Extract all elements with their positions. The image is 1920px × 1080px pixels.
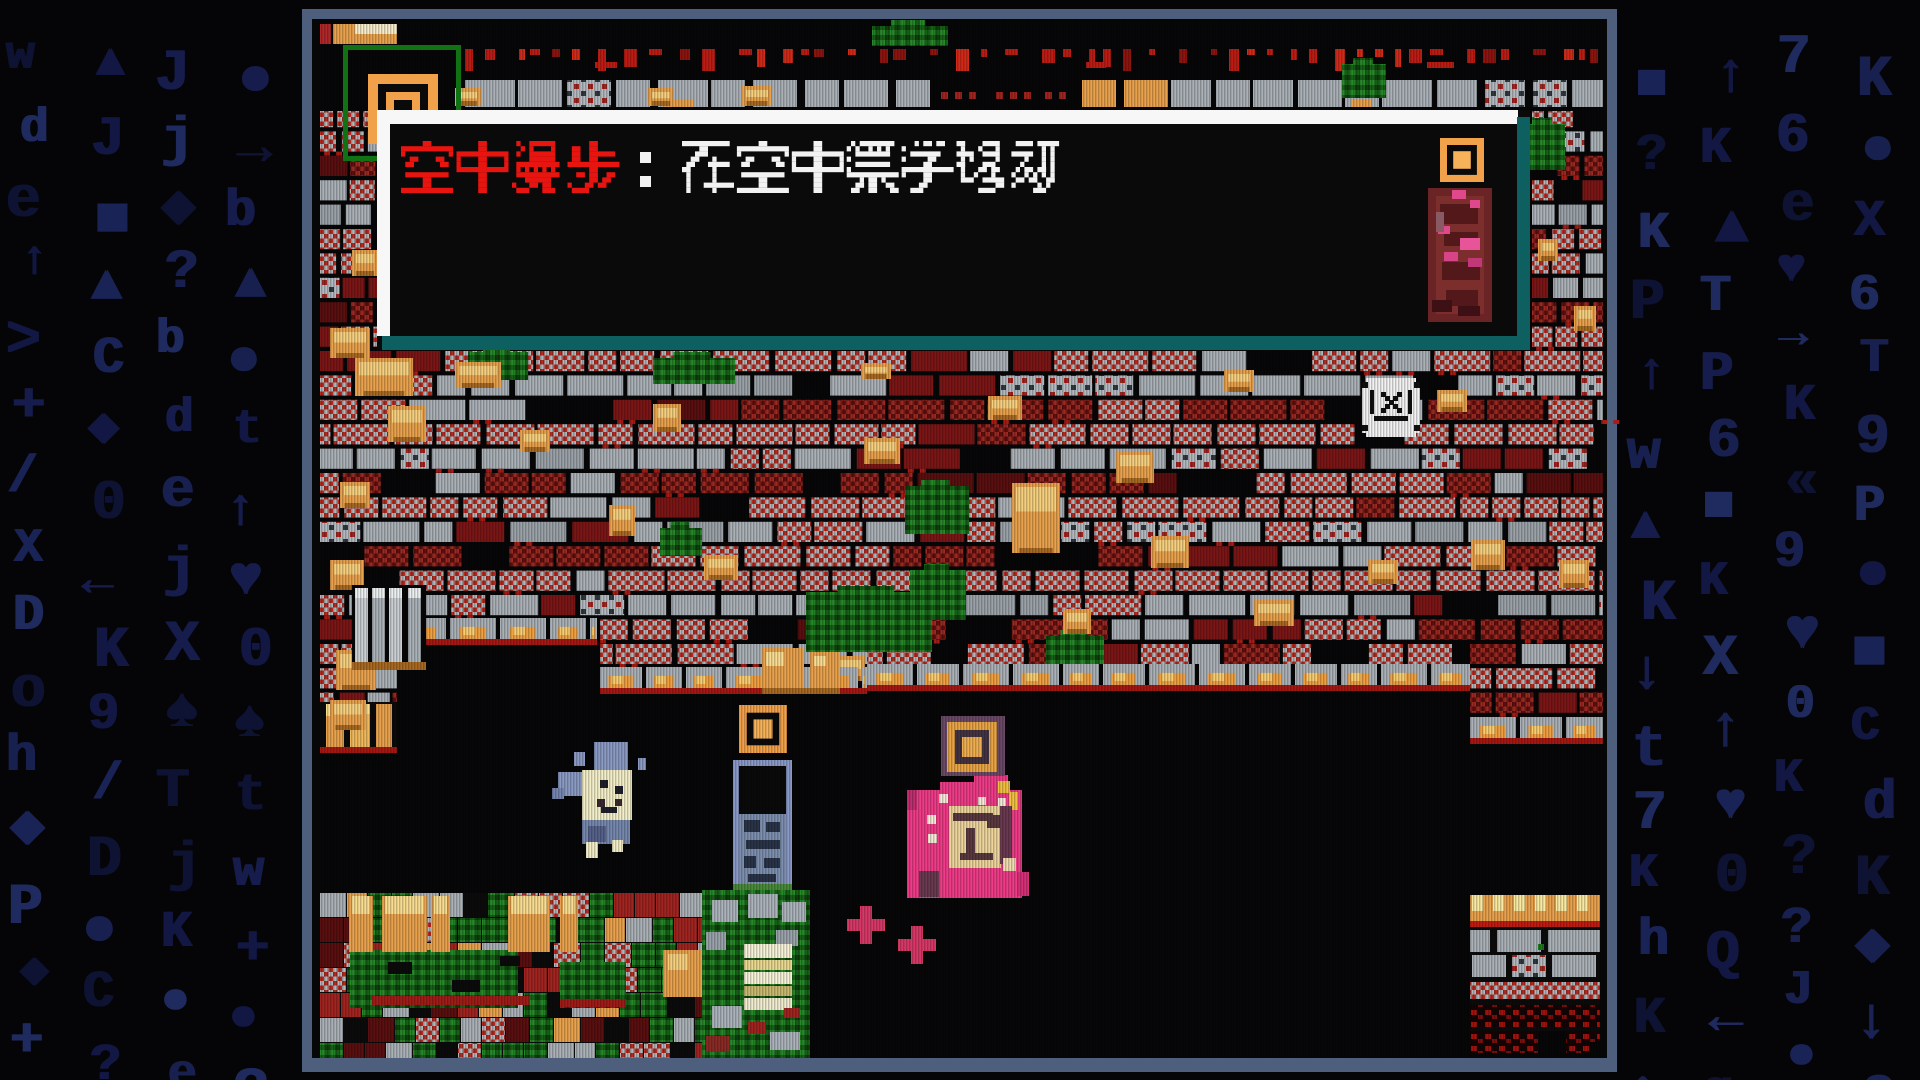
svg-text:+: +	[11, 1009, 45, 1073]
svg-text:/: /	[8, 448, 39, 507]
svg-text:?: ?	[91, 1036, 122, 1080]
svg-text:w: w	[1628, 421, 1662, 485]
svg-text:■: ■	[96, 188, 131, 253]
svg-text:Q: Q	[1707, 921, 1741, 985]
svg-text:d: d	[166, 392, 195, 446]
svg-text:K: K	[1630, 847, 1659, 901]
svg-text:◆: ◆	[21, 945, 50, 999]
svg-text:T: T	[1701, 267, 1732, 326]
svg-text:▲: ▲	[1716, 196, 1750, 260]
svg-text:▲: ▲	[92, 257, 123, 316]
svg-text:▲: ▲	[1632, 500, 1661, 554]
svg-text:♠: ♠	[166, 679, 200, 743]
svg-text:●: ●	[83, 898, 118, 963]
svg-text:♥: ♥	[1716, 775, 1747, 834]
svg-text:K: K	[1639, 204, 1671, 263]
svg-text:P: P	[9, 876, 44, 941]
svg-text:▲: ▲	[97, 37, 126, 91]
svg-text:>: >	[7, 309, 42, 374]
svg-text:7: 7	[1778, 25, 1812, 89]
svg-text:w: w	[7, 29, 36, 83]
svg-text:↑: ↑	[226, 481, 257, 540]
svg-text:●: ●	[228, 328, 262, 392]
svg-text:K: K	[1785, 376, 1817, 435]
svg-text:e: e	[169, 1048, 198, 1080]
svg-text:b: b	[157, 313, 186, 367]
svg-text:j: j	[164, 538, 198, 602]
svg-text:♥: ♥	[1786, 601, 1821, 666]
svg-text:Q: Q	[1863, 1065, 1897, 1080]
svg-text:?: ?	[1782, 899, 1813, 958]
svg-text:◆: ◆	[11, 796, 46, 861]
svg-text:←: ←	[1710, 986, 1744, 1050]
svg-text:o: o	[12, 659, 47, 724]
svg-text:P: P	[1855, 477, 1886, 536]
svg-text:t: t	[234, 403, 263, 457]
svg-text:◆: ◆	[1627, 1060, 1661, 1080]
svg-text:●: ●	[1857, 542, 1891, 606]
svg-text:K: K	[1856, 847, 1891, 912]
svg-text:■: ■	[1637, 55, 1668, 114]
svg-text:↑: ↑	[21, 234, 50, 288]
svg-text:9: 9	[1775, 523, 1806, 582]
svg-text:d: d	[21, 102, 50, 156]
svg-text:t: t	[1633, 718, 1668, 783]
svg-text:?: ?	[166, 240, 200, 304]
svg-text:♥: ♥	[1778, 242, 1807, 296]
svg-text:0: 0	[1716, 844, 1750, 908]
svg-text:D: D	[14, 586, 45, 645]
svg-text:●: ●	[1788, 1029, 1817, 1080]
svg-text:J: J	[156, 42, 191, 107]
svg-text:h: h	[7, 727, 38, 786]
svg-text:9: 9	[1857, 405, 1891, 469]
svg-text:b: b	[226, 182, 257, 241]
svg-text:↑: ↑	[1709, 698, 1744, 763]
svg-text:P: P	[1701, 342, 1735, 406]
svg-text:0: 0	[240, 618, 274, 682]
svg-text:?: ?	[1783, 826, 1818, 891]
svg-text:J: J	[92, 107, 126, 171]
svg-text:■: ■	[1853, 621, 1888, 686]
svg-text:6: 6	[1708, 409, 1742, 473]
svg-text:♠: ♠	[235, 693, 266, 752]
svg-text:K: K	[1642, 572, 1677, 637]
svg-text:d: d	[1864, 771, 1898, 835]
svg-text:●: ●	[239, 48, 274, 113]
svg-text:K: K	[1858, 48, 1893, 113]
svg-text:C: C	[94, 329, 125, 388]
svg-text:■: ■	[1704, 477, 1735, 536]
svg-text:w: w	[234, 842, 265, 901]
svg-text:?: ?	[1637, 126, 1668, 185]
svg-text:K: K	[1635, 989, 1667, 1048]
svg-text:e: e	[1782, 173, 1816, 237]
svg-text:P: P	[1631, 271, 1666, 336]
svg-text:↑: ↑	[1715, 44, 1749, 108]
svg-text:6: 6	[1850, 266, 1881, 325]
svg-text:←: ←	[83, 552, 114, 611]
svg-text:6: 6	[1777, 104, 1811, 168]
svg-text:X: X	[1855, 192, 1887, 251]
svg-text:/: /	[93, 755, 124, 814]
svg-text:◆: ◆	[162, 176, 197, 241]
svg-text:e: e	[7, 169, 42, 234]
svg-text:?: ?	[235, 1060, 270, 1080]
svg-text:g: g	[1703, 1062, 1734, 1080]
svg-text:«: «	[1786, 450, 1820, 514]
svg-text:X: X	[15, 522, 44, 576]
svg-text:j: j	[169, 833, 203, 897]
svg-text:C: C	[1852, 700, 1881, 754]
svg-text:K: K	[95, 619, 130, 684]
svg-text:0: 0	[93, 471, 127, 535]
svg-text:e: e	[162, 459, 196, 523]
svg-text:C: C	[84, 963, 115, 1022]
svg-text:h: h	[1639, 911, 1670, 970]
svg-text:→: →	[238, 117, 273, 182]
svg-text:X: X	[1704, 627, 1739, 692]
svg-text:→: →	[1780, 308, 1809, 362]
svg-text:j: j	[162, 108, 196, 172]
svg-text:+: +	[13, 374, 47, 438]
svg-text:K: K	[162, 903, 194, 962]
svg-text:0: 0	[1787, 678, 1816, 732]
svg-text:7: 7	[1634, 781, 1668, 845]
svg-text:●: ●	[1862, 117, 1896, 181]
svg-text:↓: ↓	[1631, 641, 1665, 705]
svg-text:t: t	[236, 766, 267, 825]
svg-text:▲: ▲	[236, 255, 267, 314]
svg-text:K: K	[1701, 119, 1733, 178]
svg-text:◆: ◆	[89, 399, 121, 458]
svg-text:K: K	[1700, 555, 1729, 609]
svg-text:+: +	[237, 917, 271, 981]
svg-text:T: T	[157, 759, 191, 823]
svg-text:J: J	[1785, 964, 1814, 1018]
svg-text:◆: ◆	[1856, 914, 1891, 979]
svg-text:9: 9	[89, 685, 120, 744]
svg-text:●: ●	[230, 991, 259, 1045]
svg-text:X: X	[166, 613, 201, 678]
svg-text:↑: ↑	[1637, 345, 1668, 404]
svg-text:T: T	[1861, 332, 1890, 386]
svg-text:D: D	[88, 828, 123, 893]
svg-text:●: ●	[162, 974, 191, 1028]
svg-text:K: K	[1775, 752, 1804, 806]
svg-text:↓: ↓	[1855, 990, 1890, 1055]
svg-text:♥: ♥	[230, 547, 264, 611]
